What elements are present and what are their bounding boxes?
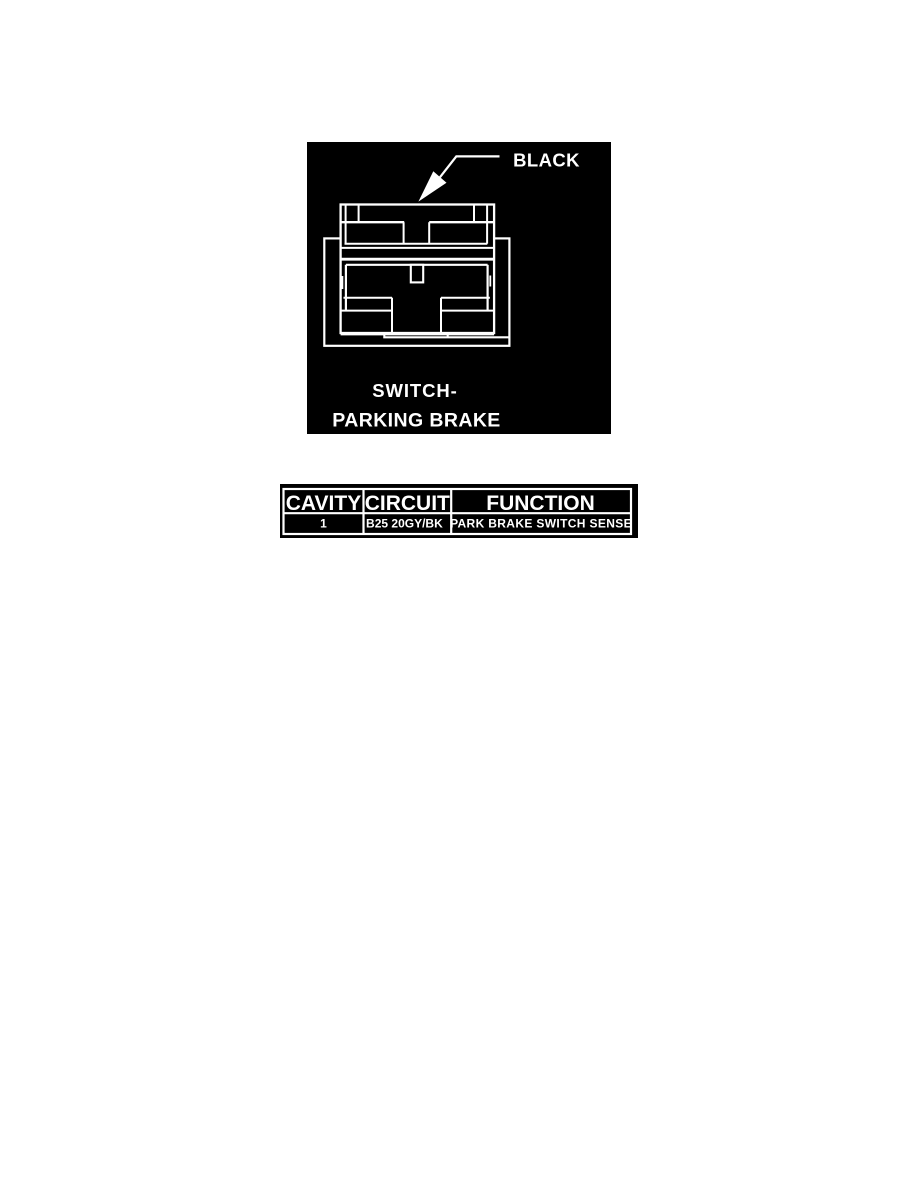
svg-text:PARK BRAKE SWITCH SENSE: PARK BRAKE SWITCH SENSE [450, 517, 632, 531]
svg-text:PARKING BRAKE: PARKING BRAKE [332, 410, 500, 432]
svg-text:CIRCUIT: CIRCUIT [365, 492, 450, 515]
svg-text:SWITCH-: SWITCH- [372, 380, 457, 401]
svg-text:BLACK: BLACK [513, 150, 580, 171]
svg-text:FUNCTION: FUNCTION [486, 492, 595, 515]
svg-text:1: 1 [320, 517, 327, 531]
svg-text:CAVITY: CAVITY [286, 492, 361, 515]
svg-text:B25 20GY/BK: B25 20GY/BK [366, 517, 443, 531]
